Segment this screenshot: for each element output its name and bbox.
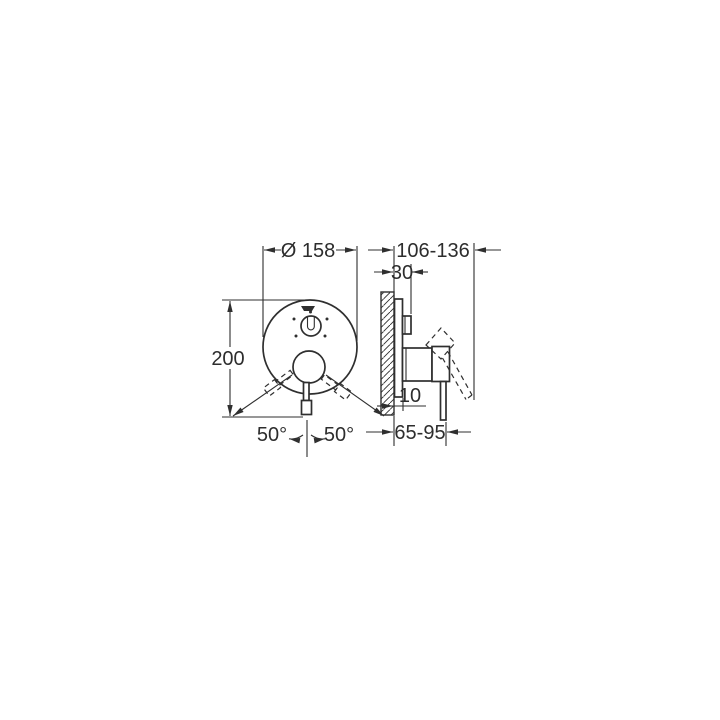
- diverter-knob-grip: [308, 317, 315, 330]
- dim-projection-label: 30: [391, 262, 413, 284]
- lever-rod-side: [441, 382, 447, 421]
- angle-left-label: 50°: [257, 424, 287, 446]
- lever-hub: [293, 351, 325, 383]
- side-view: 106-136 30 10 65-95: [366, 240, 501, 446]
- valve-body-side: [403, 348, 433, 381]
- escutcheon-plate-side: [395, 299, 403, 397]
- technical-drawing-canvas: Ø 158 200 50° 50°: [0, 0, 720, 720]
- dim-lever-depth-label: 65-95: [394, 422, 445, 444]
- swing-arc-left: [289, 435, 303, 439]
- wall-section: [381, 292, 394, 415]
- brand-logo-mark: [301, 306, 315, 311]
- lever-rod-tip: [302, 401, 312, 415]
- dim-diameter-label: Ø 158: [281, 240, 335, 262]
- diverter-knob-side: [403, 316, 412, 334]
- diverter-knob: [301, 316, 321, 336]
- angle-leg-left: [233, 375, 292, 416]
- dim-height-label: 200: [211, 348, 244, 370]
- angle-right-label: 50°: [324, 424, 354, 446]
- angle-leg-right: [326, 375, 384, 416]
- front-view: Ø 158 200 50° 50°: [211, 240, 384, 457]
- lever-rod: [304, 383, 310, 401]
- knob-position-dots: [293, 311, 329, 338]
- dim-depth-range-label: 106-136: [396, 240, 469, 262]
- dim-plate-gap-label: 10: [399, 385, 421, 407]
